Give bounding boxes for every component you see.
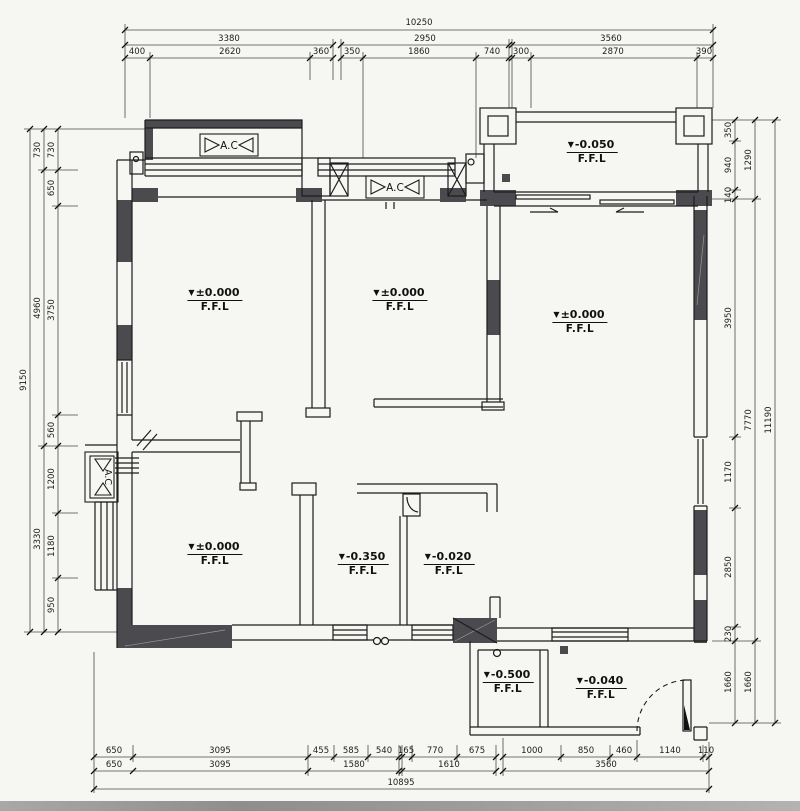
ffl-marker-entry: ▼-0.040 F.F.L <box>576 674 627 701</box>
floorplan-drawing: A.C A.C A.C <box>0 0 800 811</box>
dim-bottom-overall: 10895 <box>387 779 414 788</box>
ffl-marker-bathroom: ▼-0.350 F.F.L <box>338 550 389 577</box>
dim-left-overall: 9150 <box>20 369 29 391</box>
dim-right: 940 <box>725 157 734 173</box>
dim-right: 1170 <box>725 461 734 483</box>
ffl-marker-living-room: ▼±0.000 F.F.L <box>552 308 607 335</box>
dim-left: 560 <box>48 422 57 438</box>
ac-unit-middle: A.C <box>366 176 424 198</box>
dimension-ticks <box>27 27 778 792</box>
dim-bottom: 1580 <box>343 761 365 770</box>
dim-right: 7770 <box>745 409 754 431</box>
dim-top: 3560 <box>600 35 622 44</box>
dim-right: 1660 <box>725 671 734 693</box>
dimension-lines <box>24 24 781 793</box>
level-triangle-icon: ▼ <box>425 553 431 561</box>
dim-left: 730 <box>34 142 43 158</box>
level-triangle-icon: ▼ <box>188 289 194 297</box>
ffl-marker-room-top-left: ▼±0.000 F.F.L <box>187 286 242 313</box>
dim-bottom: 110 <box>698 747 714 756</box>
dim-left: 950 <box>48 597 57 613</box>
level-triangle-icon: ▼ <box>553 311 559 319</box>
dim-top-overall: 10250 <box>405 19 432 28</box>
dim-bottom: 650 <box>106 761 122 770</box>
dim-right: 1660 <box>745 671 754 693</box>
dim-bottom: 675 <box>469 747 485 756</box>
ac-label: A.C <box>102 469 113 485</box>
dim-right: 140 <box>725 187 734 203</box>
dim-bottom: 1000 <box>521 747 543 756</box>
dim-top: 350 <box>344 48 360 57</box>
dim-bottom: 850 <box>578 747 594 756</box>
dim-bottom: 1140 <box>659 747 681 756</box>
ac-unit-left: A.C <box>85 452 118 502</box>
dim-left: 1200 <box>48 468 57 490</box>
dim-bottom: 165 <box>398 747 414 756</box>
dim-top: 3380 <box>218 35 240 44</box>
entrance-door-arc <box>637 680 688 731</box>
dim-right: 3950 <box>725 307 734 329</box>
ffl-marker-kitchen: ▼-0.500 F.F.L <box>483 668 534 695</box>
dim-top: 2950 <box>414 35 436 44</box>
dim-right-overall: 11190 <box>765 406 774 433</box>
ffl-marker-room-top-middle: ▼±0.000 F.F.L <box>372 286 427 313</box>
dim-right: 1290 <box>745 149 754 171</box>
dim-top: 740 <box>484 48 500 57</box>
dim-top: 2620 <box>219 48 241 57</box>
ac-unit-top-left: A.C <box>200 134 258 156</box>
dim-left: 730 <box>48 142 57 158</box>
level-triangle-icon: ▼ <box>577 677 583 685</box>
dim-bottom: 650 <box>106 747 122 756</box>
dim-right: 350 <box>725 122 734 138</box>
dim-bottom: 3095 <box>209 761 231 770</box>
dim-left: 4960 <box>34 297 43 319</box>
level-triangle-icon: ▼ <box>484 671 490 679</box>
dim-top: 300 <box>513 48 529 57</box>
ac-label: A.C <box>386 182 404 194</box>
dim-top: 360 <box>313 48 329 57</box>
ac-label: A.C <box>220 140 238 152</box>
dim-bottom: 455 <box>313 747 329 756</box>
dim-bottom: 770 <box>427 747 443 756</box>
dim-top: 390 <box>696 48 712 57</box>
dim-left: 3750 <box>48 299 57 321</box>
level-triangle-icon: ▼ <box>373 289 379 297</box>
dim-left: 3330 <box>34 528 43 550</box>
dim-top: 400 <box>129 48 145 57</box>
dim-top: 2870 <box>602 48 624 57</box>
dim-right: 230 <box>725 626 734 642</box>
ffl-marker-storage: ▼-0.020 F.F.L <box>424 550 475 577</box>
dim-right: 2850 <box>725 556 734 578</box>
sheet-edge-strip <box>0 801 800 811</box>
dim-top: 1860 <box>408 48 430 57</box>
dim-bottom: 1610 <box>438 761 460 770</box>
dim-bottom: 585 <box>343 747 359 756</box>
floorplan-sheet: A.C A.C A.C 10250 3380 2950 3560 400 262… <box>0 0 800 811</box>
dim-bottom: 540 <box>376 747 392 756</box>
dim-bottom: 3095 <box>209 747 231 756</box>
ffl-marker-balcony: ▼-0.050 F.F.L <box>567 138 618 165</box>
level-triangle-icon: ▼ <box>188 543 194 551</box>
ffl-marker-bedroom-bottom-left: ▼±0.000 F.F.L <box>187 540 242 567</box>
dim-bottom: 3560 <box>595 761 617 770</box>
dim-left: 650 <box>48 180 57 196</box>
level-triangle-icon: ▼ <box>568 141 574 149</box>
dim-bottom: 460 <box>616 747 632 756</box>
level-triangle-icon: ▼ <box>339 553 345 561</box>
dim-left: 1180 <box>48 535 57 557</box>
entrance-door-leaf <box>684 705 690 730</box>
